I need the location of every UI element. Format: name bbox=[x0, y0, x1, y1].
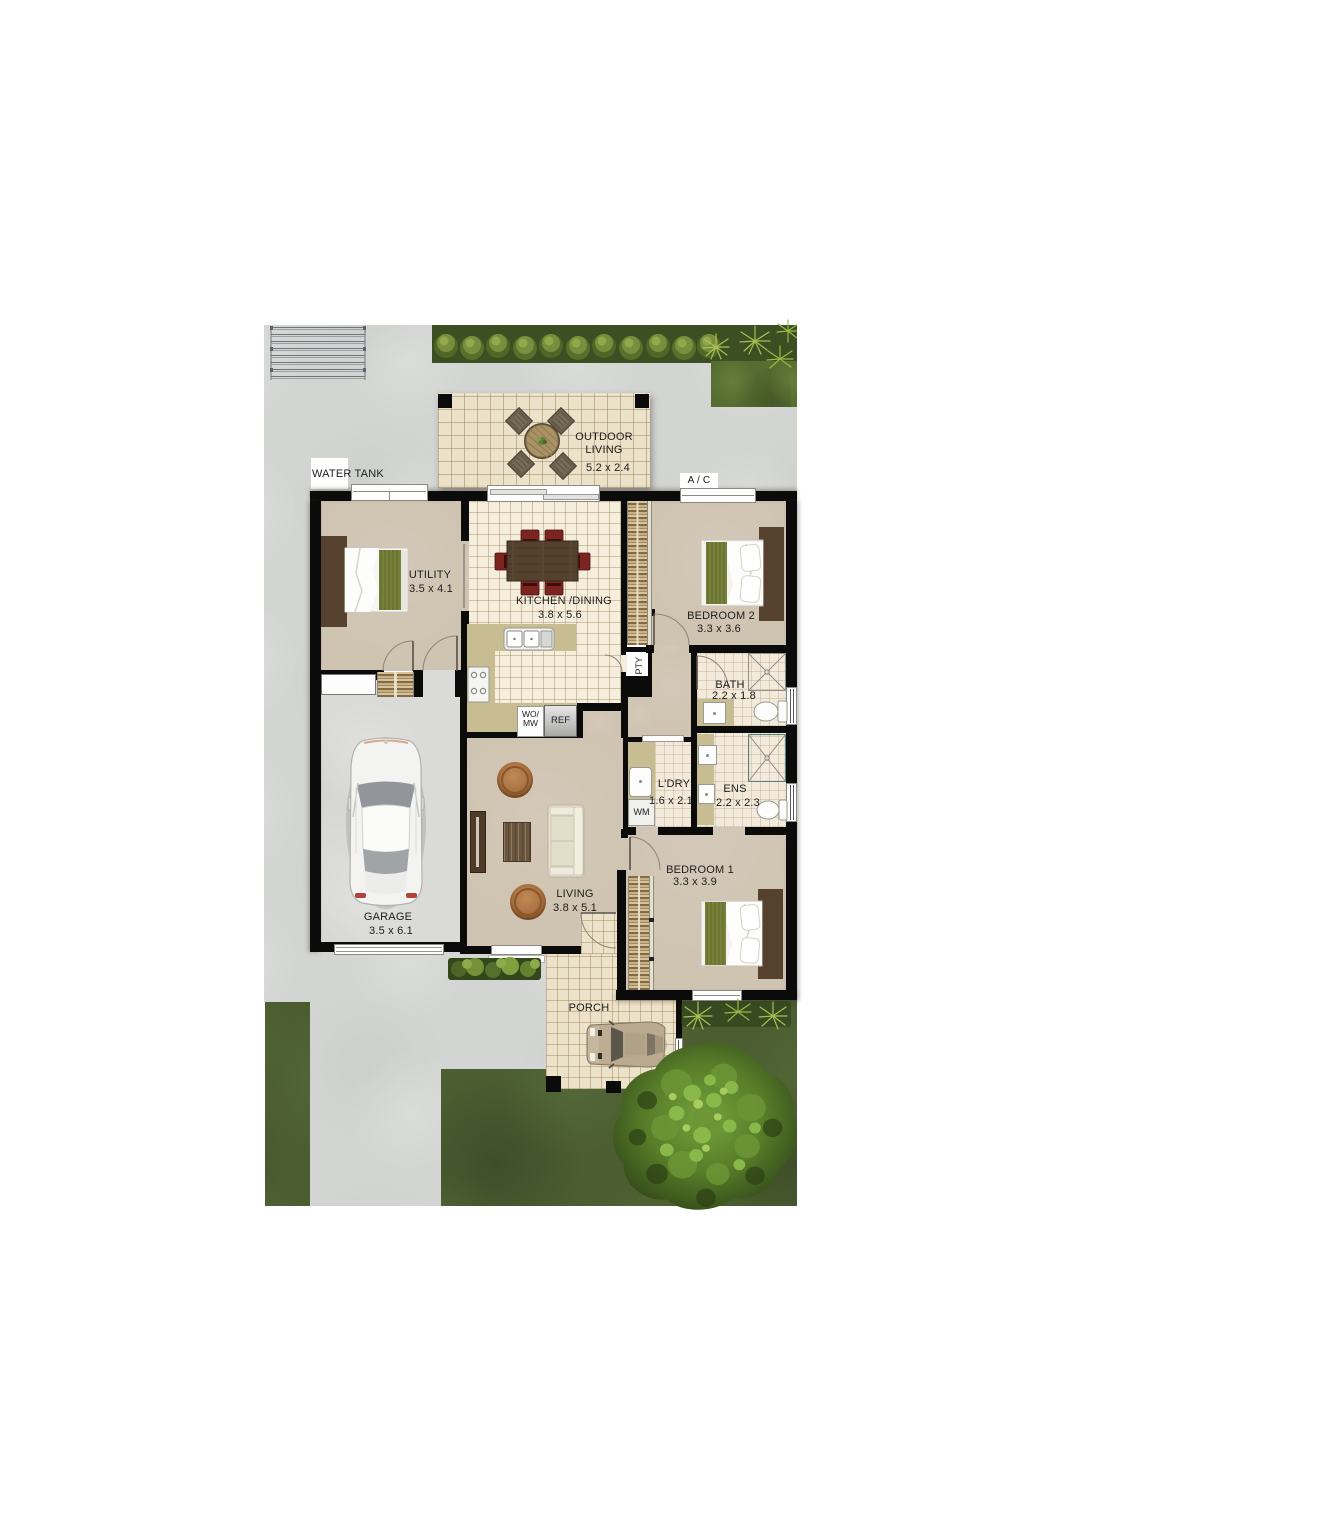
svg-text:PTY: PTY bbox=[634, 657, 644, 675]
